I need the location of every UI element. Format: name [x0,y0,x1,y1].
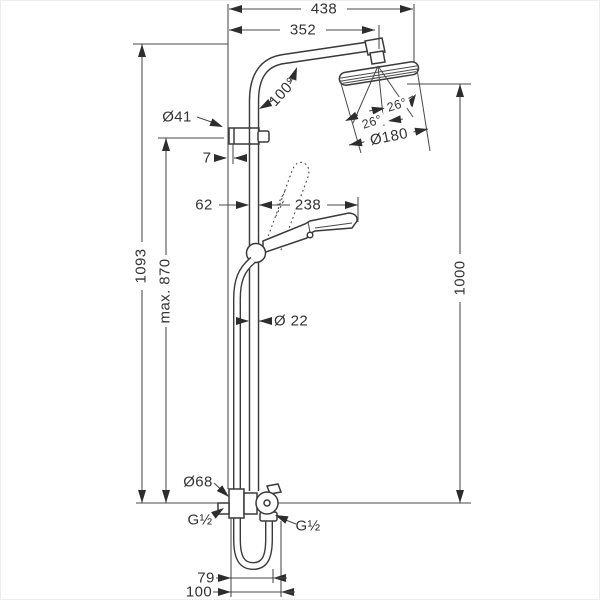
wall-escutcheon [229,489,244,518]
dim-label-100: 100 [186,584,212,601]
valve-cartridge [244,493,257,514]
dim-label-238: 238 [295,197,321,214]
dimensions: 438 352 100° Ø41 7 62 238 [133,1,472,601]
dim-label-o22: Ø 22 [274,313,308,330]
dim-label-g12-handshower: G½ [296,518,321,535]
dim-label-352: 352 [290,22,316,39]
head-ball-joint [365,38,385,64]
dim-label-62: 62 [195,197,213,214]
dim-label-1000: 1000 [452,261,469,296]
technical-drawing: 438 352 100° Ø41 7 62 238 [0,0,600,600]
dim-label-g12-inlet: G½ [188,512,213,529]
dim-label-o41: Ø41 [162,109,192,126]
shower-system-diagram: 438 352 100° Ø41 7 62 238 [1,1,600,601]
hand-shower [263,213,357,253]
dim-label-o180: Ø180 [369,125,410,149]
dim-label-26-right: 26° [385,95,408,115]
dim-label-max870: max. 870 [157,259,174,324]
dim-label-438: 438 [311,1,337,18]
dim-label-o68: Ø68 [183,474,213,491]
dim-label-1093: 1093 [133,249,150,284]
dim-label-26-left: 26° [360,112,383,132]
dim-label-7: 7 [203,150,212,167]
valve-body [256,492,278,514]
